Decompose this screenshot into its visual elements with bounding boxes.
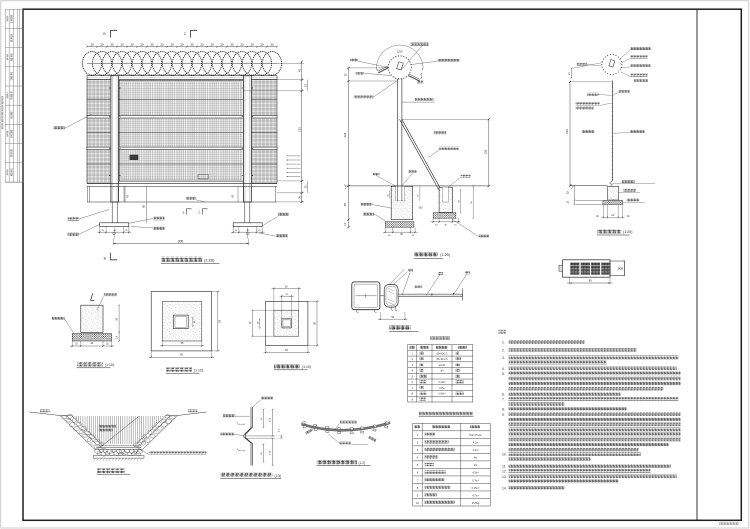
svg-text:223: 223: [343, 132, 347, 137]
svg-text:4.2m: 4.2m: [473, 449, 479, 452]
svg-text:6.: 6.: [502, 392, 505, 396]
svg-text:C15+: C15+: [439, 388, 445, 390]
svg-text:20: 20: [190, 43, 194, 47]
svg-text:C: C: [198, 211, 200, 215]
svg-text:10.: 10.: [502, 453, 507, 457]
svg-text:20: 20: [240, 43, 244, 47]
svg-text:4.7m³: 4.7m³: [472, 494, 479, 497]
svg-text:150: 150: [484, 149, 488, 154]
svg-text:7.: 7.: [502, 398, 505, 402]
svg-text:20: 20: [110, 43, 114, 47]
svg-text:(1:5): (1:5): [275, 474, 282, 478]
svg-text:0.7m³: 0.7m³: [472, 479, 479, 482]
svg-text:(1:20): (1:20): [440, 253, 451, 257]
svg-text:20: 20: [200, 43, 204, 47]
svg-text:φ4×50: φ4×50: [439, 364, 446, 367]
svg-text:4.5m³: 4.5m³: [472, 472, 479, 475]
svg-text:20: 20: [130, 43, 134, 47]
svg-text:60×60×2.5: 60×60×2.5: [437, 352, 449, 355]
svg-text:11.: 11.: [502, 464, 507, 468]
svg-text:35.5kg: 35.5kg: [472, 502, 480, 505]
svg-text:1250: 1250: [397, 49, 403, 53]
svg-text:60×40×2.5: 60×40×2.5: [437, 358, 449, 361]
svg-text:13.: 13.: [502, 475, 507, 479]
svg-text:4.: 4.: [502, 367, 505, 371]
svg-text:5.: 5.: [502, 372, 505, 376]
svg-text:(1:20): (1:20): [204, 258, 215, 263]
svg-text:20: 20: [220, 43, 224, 47]
svg-text:4m: 4m: [474, 457, 477, 460]
svg-text:E: E: [183, 211, 185, 215]
svg-text:2.: 2.: [502, 349, 505, 353]
svg-text:0.05m³: 0.05m³: [472, 487, 480, 490]
svg-text:2m: 2m: [474, 464, 477, 467]
svg-text:(1:10): (1:10): [194, 369, 203, 373]
svg-text:8.: 8.: [502, 408, 505, 412]
svg-text:20: 20: [170, 43, 174, 47]
svg-text:(1:20): (1:20): [623, 230, 632, 234]
svg-text:20: 20: [210, 43, 214, 47]
svg-text:(1:10): (1:10): [302, 365, 311, 369]
svg-text:20: 20: [120, 43, 124, 47]
svg-text:20: 20: [230, 43, 234, 47]
svg-text:0.08m³: 0.08m³: [438, 393, 445, 396]
svg-text:0.19m³: 0.19m³: [438, 381, 445, 384]
svg-text:223: 223: [297, 127, 301, 132]
svg-text:300: 300: [178, 239, 184, 243]
svg-text:10: 10: [416, 501, 419, 505]
svg-text:20: 20: [250, 43, 254, 47]
svg-text:3.: 3.: [502, 356, 505, 360]
svg-text:12.: 12.: [502, 469, 507, 473]
svg-text:4.2m: 4.2m: [473, 442, 479, 445]
svg-text:90: 90: [589, 279, 593, 283]
svg-text:20: 20: [270, 43, 274, 47]
svg-text:20: 20: [160, 43, 164, 47]
svg-text:20: 20: [260, 43, 264, 47]
svg-text:1.: 1.: [502, 341, 505, 345]
svg-text:20: 20: [100, 43, 104, 47]
svg-text:(1:2): (1:2): [359, 461, 366, 465]
svg-text:20: 20: [150, 43, 154, 47]
svg-text:20: 20: [90, 43, 94, 47]
svg-text:14.: 14.: [502, 487, 507, 491]
svg-text:20: 20: [140, 43, 144, 47]
svg-text:20: 20: [180, 43, 184, 47]
svg-text:223: 223: [565, 129, 569, 134]
svg-text:9.: 9.: [502, 413, 505, 417]
svg-text:5.6m×5.2m: 5.6m×5.2m: [469, 434, 482, 437]
svg-text:(1:10): (1:10): [105, 363, 114, 367]
